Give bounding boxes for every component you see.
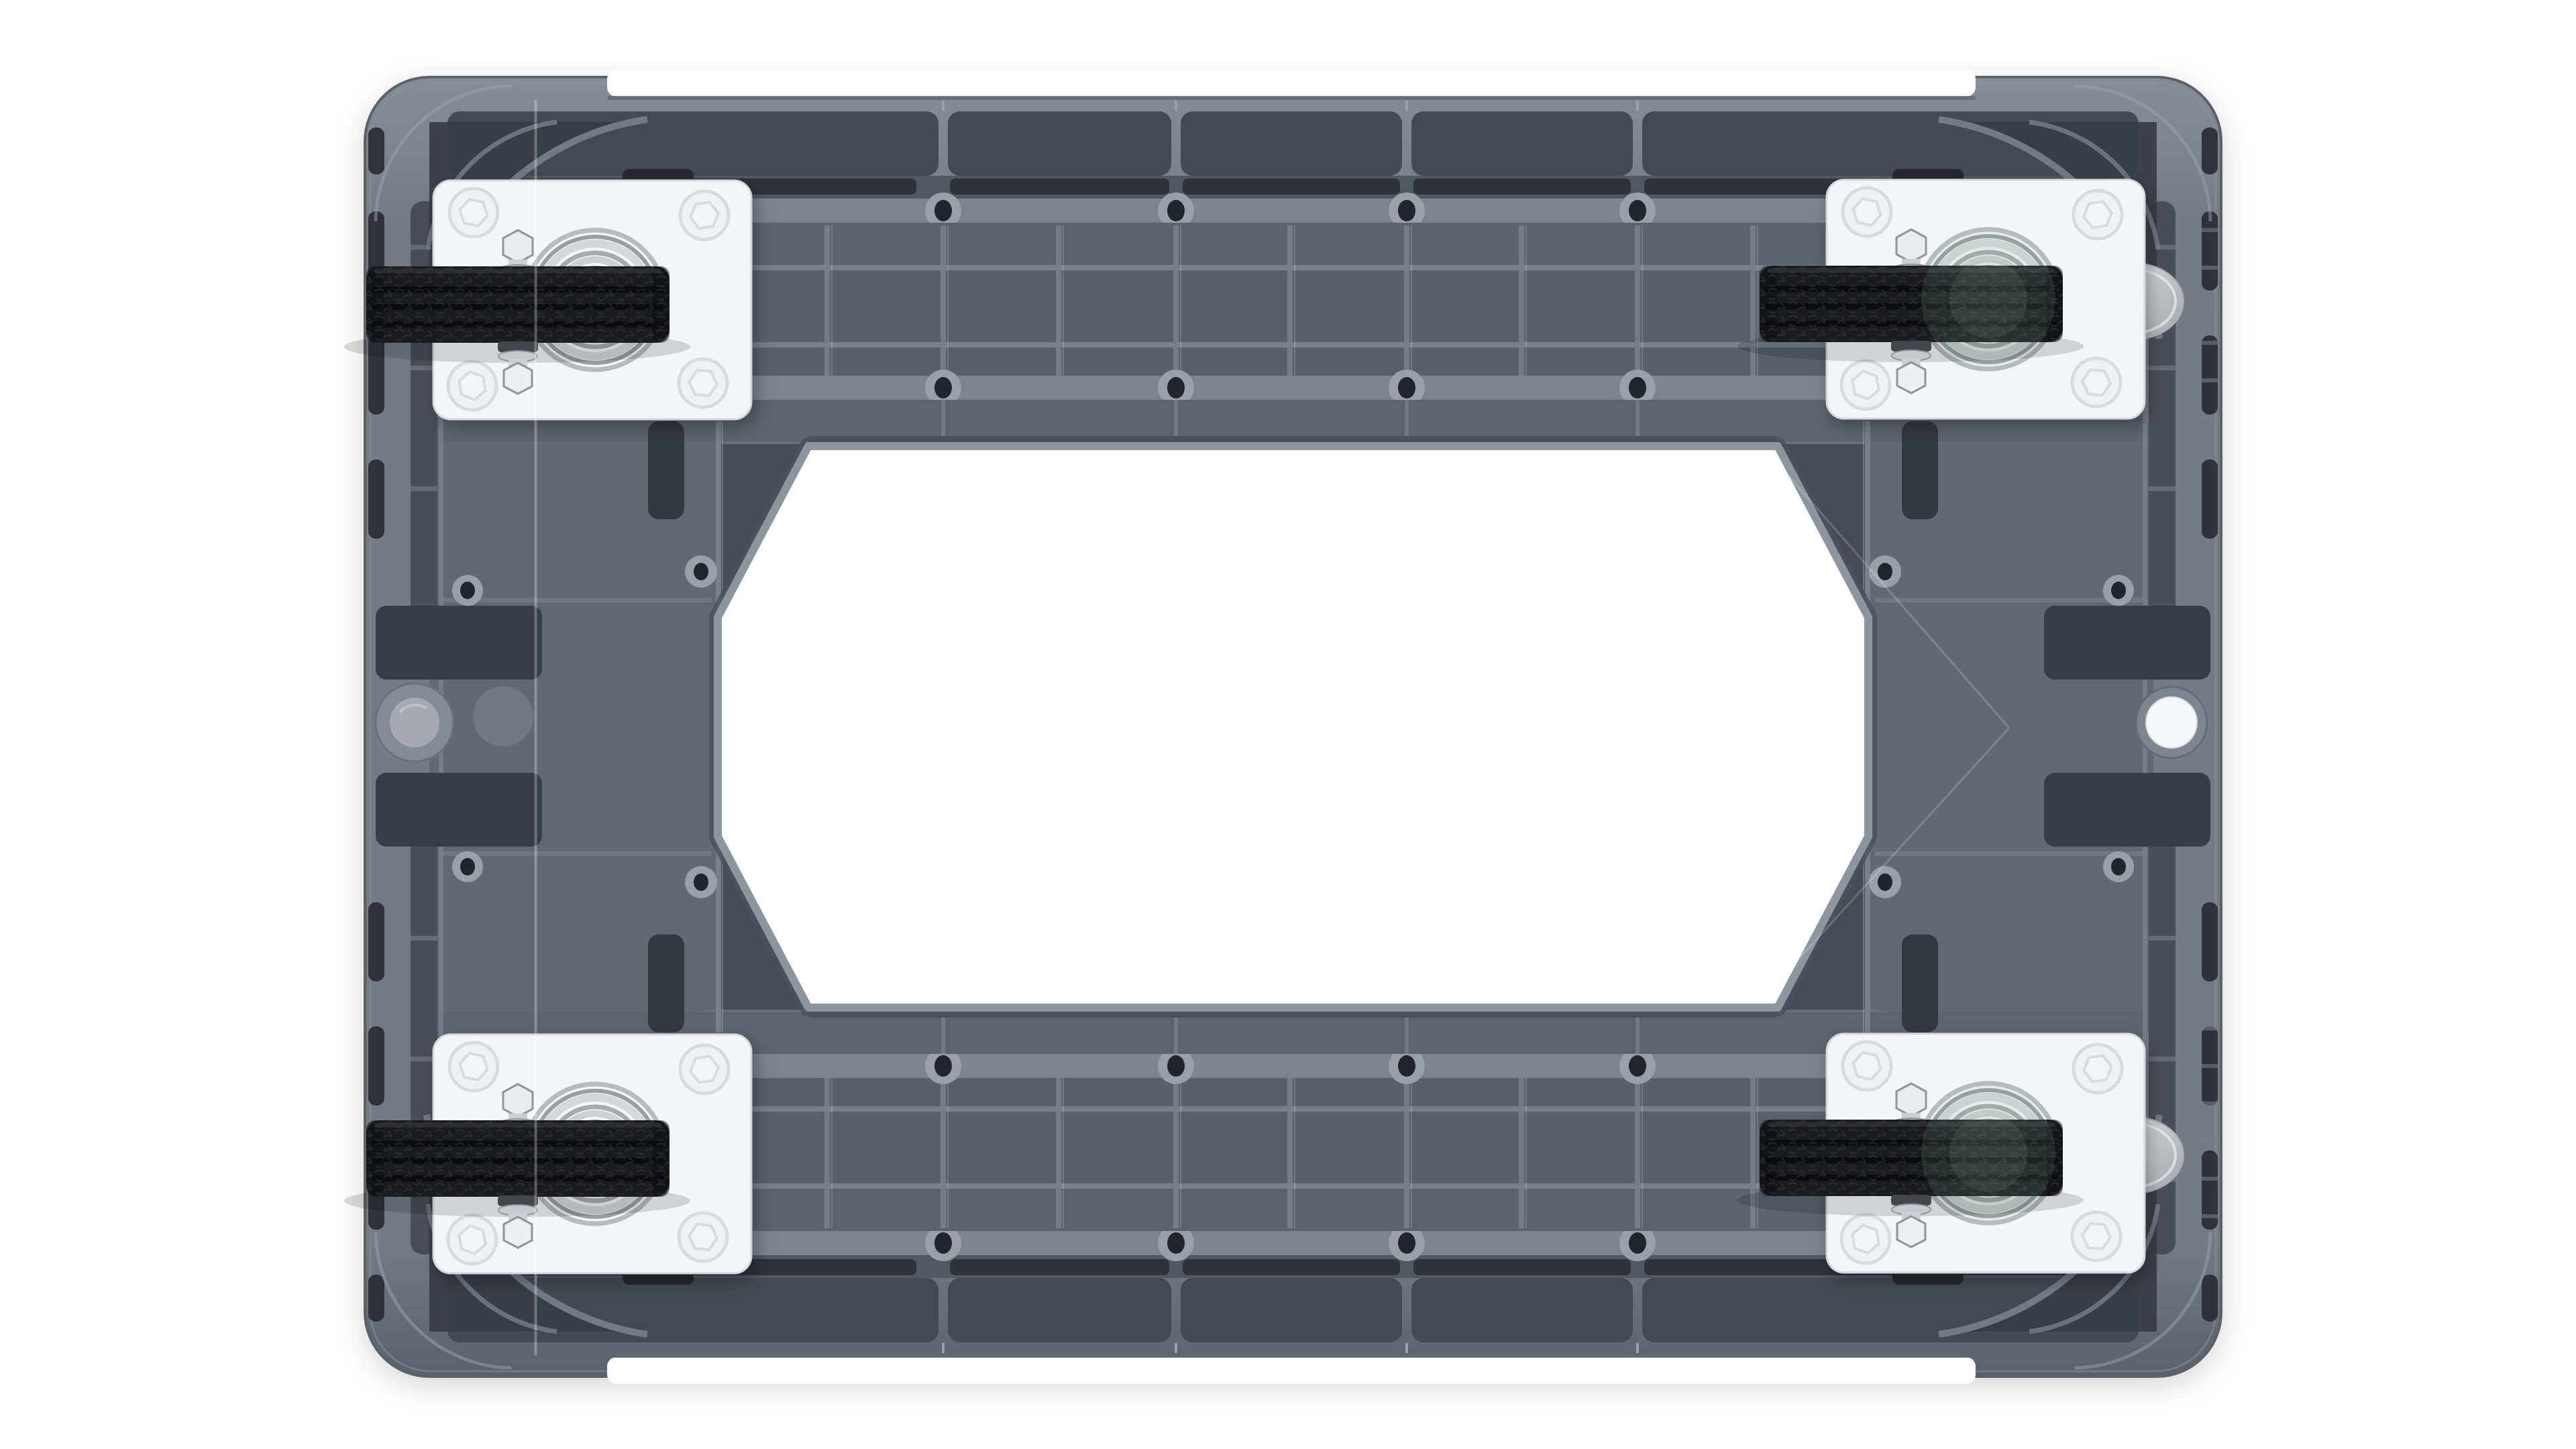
side-port-right: [2136, 687, 2207, 758]
central-octagon-cutout: [718, 446, 1868, 1008]
photo-stage: [0, 0, 2576, 1449]
vertical-mold-seam: [535, 101, 537, 1355]
dolly-photo: [0, 0, 2576, 1449]
side-boss-left: [376, 684, 453, 761]
sheen-spot: [473, 686, 533, 747]
